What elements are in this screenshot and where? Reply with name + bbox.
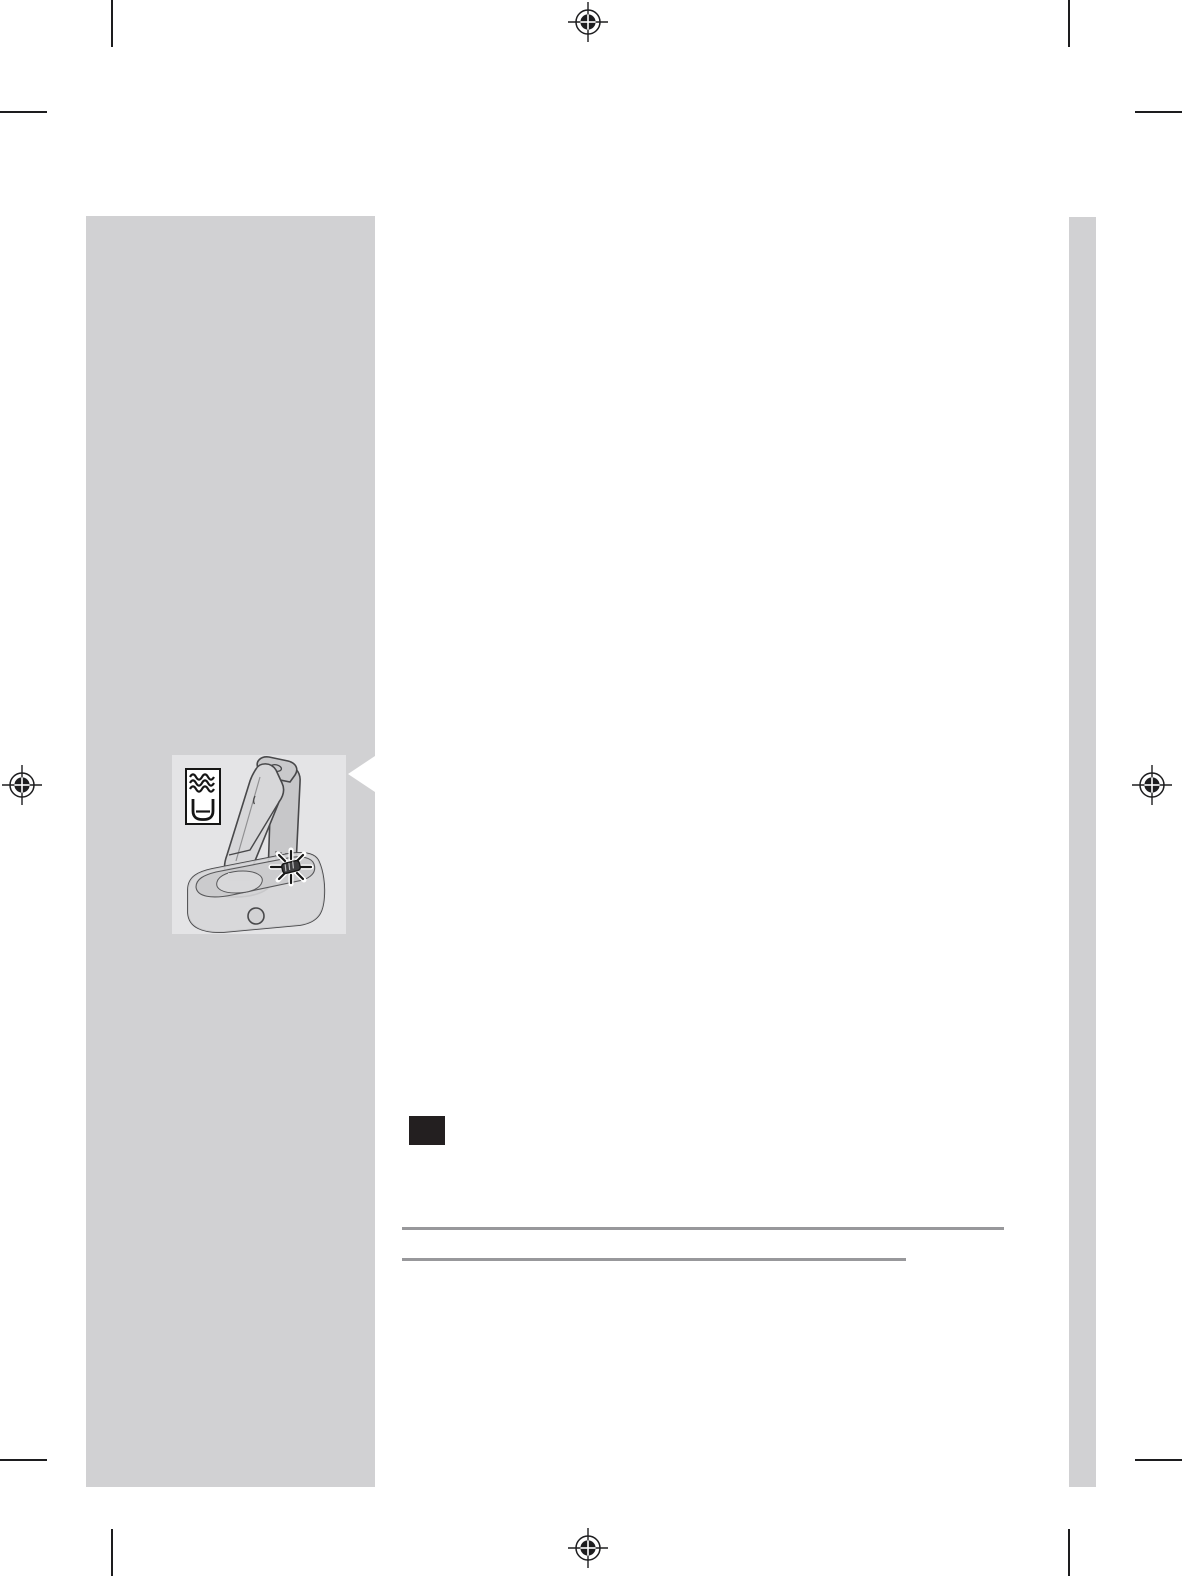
crop-mark-bottom-right-vertical — [1068, 1529, 1070, 1576]
crop-mark-bottom-right-horizontal — [1135, 1459, 1182, 1461]
crop-mark-bottom-left-horizontal — [0, 1459, 47, 1461]
right-gray-edge-strip — [1069, 217, 1096, 1487]
station-illustration-box — [172, 755, 346, 934]
long-rule — [402, 1227, 1004, 1230]
crop-mark-top-left-vertical — [111, 0, 113, 47]
short-rule — [402, 1258, 906, 1261]
registration-mark-icon — [566, 0, 610, 44]
crop-mark-bottom-left-vertical — [111, 1529, 113, 1576]
crop-mark-top-right-vertical — [1068, 0, 1070, 47]
cleaning-symbols — [187, 770, 219, 823]
base-button-icon — [248, 908, 264, 924]
registration-mark-icon — [566, 1526, 610, 1570]
crop-mark-top-left-horizontal — [0, 111, 47, 113]
section-marker-square — [409, 1116, 445, 1145]
cleaning-symbol-frame — [185, 768, 221, 825]
water-waves-icon — [190, 774, 214, 791]
cleaning-fluid-cup-icon — [193, 799, 213, 820]
registration-mark-icon — [0, 763, 44, 807]
blinking-indicator-icon — [271, 850, 311, 884]
crop-mark-top-right-horizontal — [1135, 111, 1182, 113]
registration-mark-icon — [1130, 763, 1174, 807]
document-page — [0, 0, 1182, 1576]
